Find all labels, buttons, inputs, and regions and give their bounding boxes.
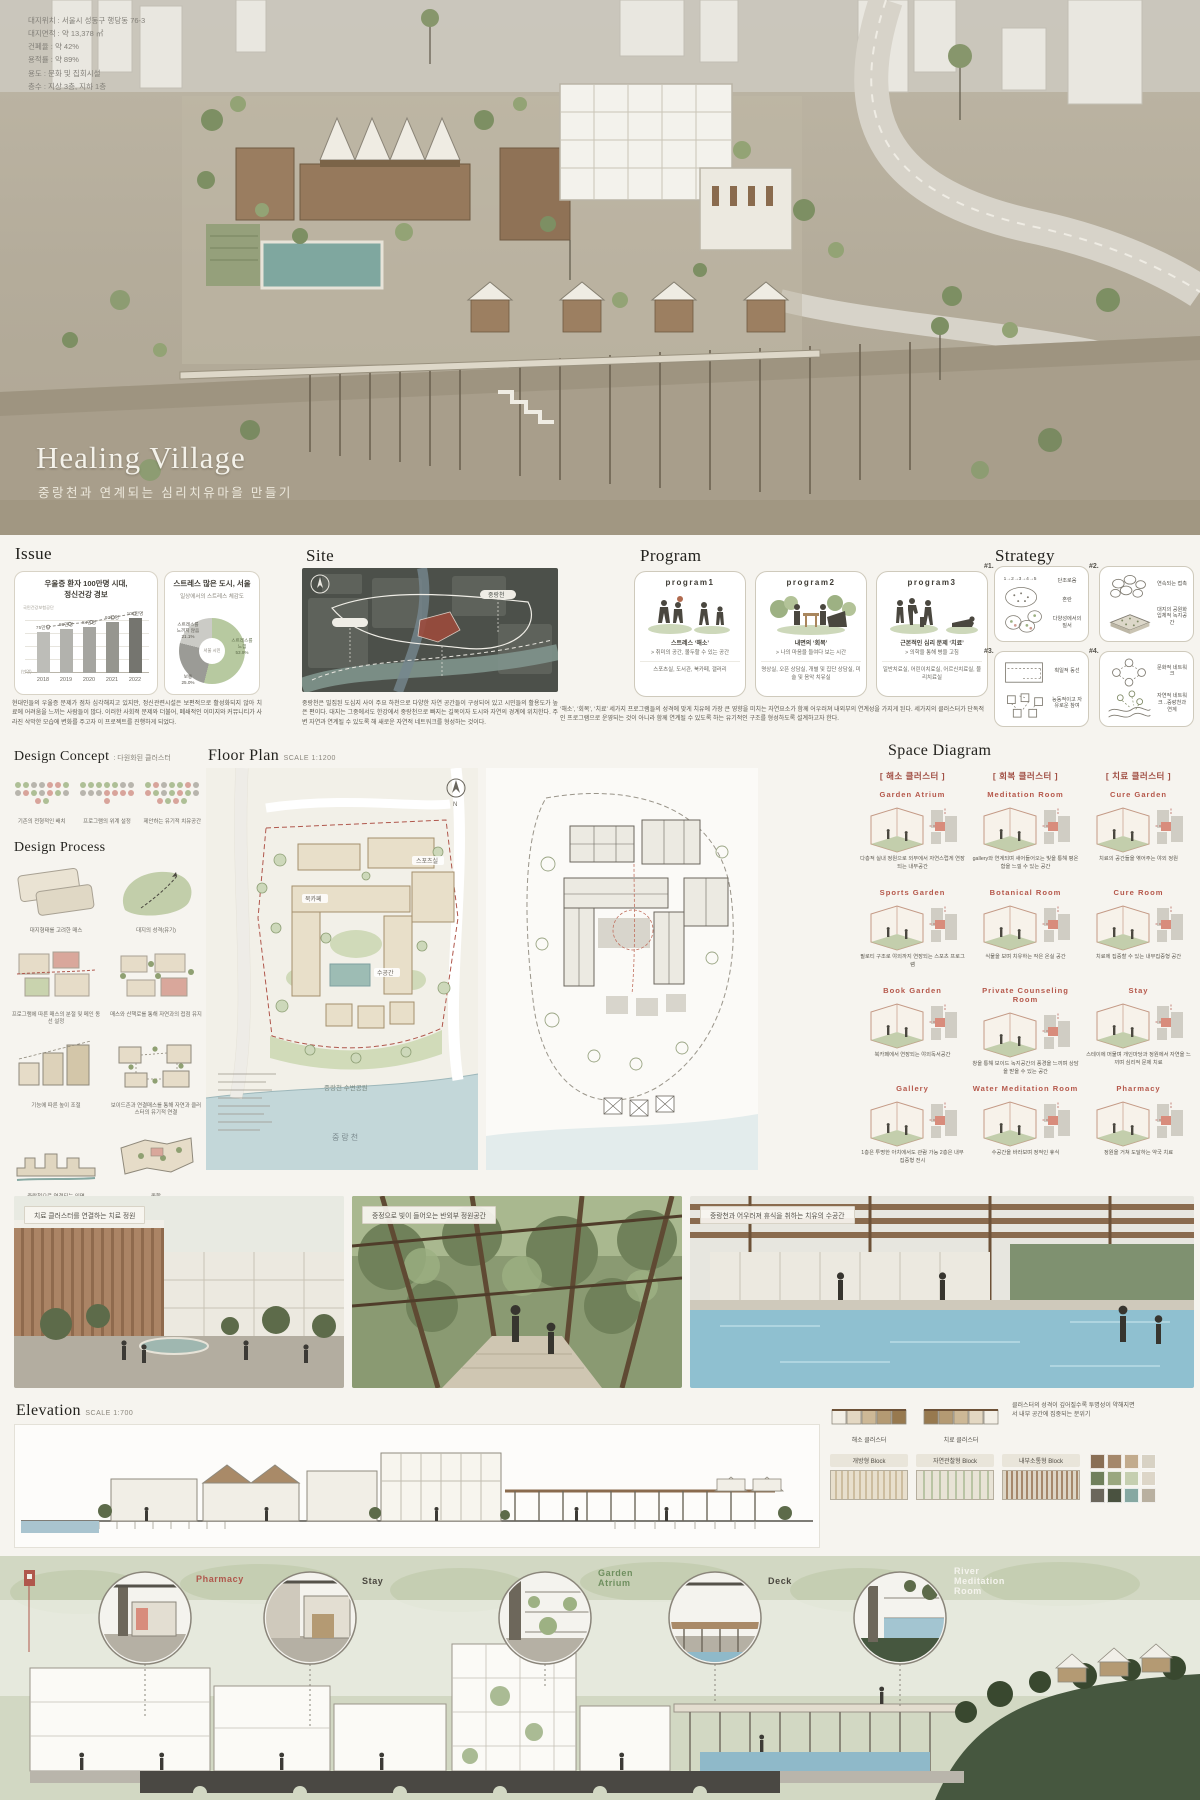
strategy2-doodle bbox=[1106, 572, 1152, 636]
block-sketch bbox=[830, 1470, 908, 1500]
strategy4-doodle bbox=[1106, 657, 1152, 721]
program3-line3: 일반치료실, 어린이치료실, 어르신치료실, 물리치료실 bbox=[882, 661, 982, 682]
svg-text:N: N bbox=[453, 802, 457, 808]
process-caption: 기능에 따른 높이 조절 bbox=[10, 1103, 102, 1111]
strategy-caption: 능동적이고 자유로운 참여 bbox=[1051, 697, 1083, 711]
material-swatch bbox=[1141, 1471, 1156, 1486]
design-process-grid: 대지형태를 고려한 매스 대지의 성격(유기) 프로그램에 따른 매스의 분절 … bbox=[10, 862, 202, 1201]
block-nature: 자연관찰형 Block bbox=[916, 1454, 994, 1500]
strategy-caption: 문화적 네트워크 bbox=[1156, 665, 1188, 679]
issue-body-text: 현대인들의 우울증 문제가 점차 심각해지고 있지만, 정신관련시설은 보편적으… bbox=[12, 700, 262, 728]
bar-series: 75만명80만명84만명93만명100만명 bbox=[29, 607, 149, 673]
pie-center-label: 서울 시민 bbox=[203, 648, 220, 654]
mini-label: 치료 클러스터 bbox=[922, 1435, 1000, 1444]
space-cell-caption: 수공간을 바라보며 정적인 휴식 bbox=[969, 1150, 1082, 1158]
space-cell-cure-room: Cure Room 치료에 집중할 수 있는 내부집중형 공간 bbox=[1082, 888, 1195, 979]
svg-text:1→2→3→4→5: 1→2→3→4→5 bbox=[1004, 576, 1037, 582]
render-caption: 중정으로 빛이 들어오는 반외부 정원공간 bbox=[362, 1206, 496, 1224]
block-open: 개방형 Block bbox=[830, 1454, 908, 1500]
bar: 75만명 bbox=[36, 624, 50, 673]
site-heading: Site bbox=[306, 546, 334, 566]
space-cell-title: Cure Room bbox=[1082, 888, 1195, 897]
strategy-caption: 연속되는 접촉 bbox=[1156, 581, 1188, 588]
strategy-caption: 혼란 bbox=[1051, 597, 1083, 604]
program-card-name: program2 bbox=[761, 578, 861, 587]
info-line: 건폐율 : 약 42% bbox=[28, 40, 145, 53]
block-label: 내부소통형 Block bbox=[1002, 1454, 1080, 1467]
process-step-6: 보이드존과 연결매스를 통해 자연과 클러스터의 유기적 연결 bbox=[110, 1037, 202, 1118]
program2-line1: 내면의 ‘회복’ bbox=[761, 638, 861, 647]
space-cell-botanical-room: Botanical Room 식물을 보며 치유하는 작은 온실 공간 bbox=[969, 888, 1082, 979]
process-caption: 프로그램에 따른 매스의 분절 및 메인 동선 설정 bbox=[10, 1012, 102, 1027]
program3-line2: > 의학을 통해 병을 고침 bbox=[882, 648, 982, 656]
space-diagram-heading: Space Diagram bbox=[888, 742, 991, 760]
issue-cards: 우울증 환자 100만명 시대, 정신건강 경보 국민건강보험공단 (만명) 7… bbox=[14, 571, 260, 695]
space-cell-stay: Stay 스테이에 머물며 개인마당과 정원에서 자연을 느끼며 심리적 문제 … bbox=[1082, 986, 1195, 1077]
bar: 84만명 bbox=[82, 619, 96, 673]
process-caption: 보이드존과 연결매스를 통해 자연과 클러스터의 유기적 연결 bbox=[110, 1103, 202, 1118]
material-swatch bbox=[1107, 1454, 1122, 1469]
plan-label-park: 중랑천 수변공원 bbox=[324, 1083, 368, 1092]
design-concept-title: Design Concept bbox=[14, 749, 109, 764]
render-cure-garden: 치료 클러스터를 연결하는 치료 정원 bbox=[14, 1196, 344, 1388]
process-caption: 대지의 성격(유기) bbox=[110, 928, 202, 936]
plan-label-river: 중랑천 bbox=[332, 1132, 360, 1142]
cluster-transparency-diagrams: 해소 클러스터 치료 클러스터 bbox=[830, 1402, 1000, 1444]
strategy3-doodle bbox=[1001, 657, 1047, 721]
program3-illustration bbox=[882, 591, 982, 635]
concept-caption: 제안하는 유기적 치유공간 bbox=[143, 817, 202, 825]
bar: 93만명 bbox=[105, 614, 119, 673]
depression-chart-card: 우울증 환자 100만명 시대, 정신건강 경보 국민건강보험공단 (만명) 7… bbox=[14, 571, 158, 695]
strategy-heading: Strategy bbox=[995, 546, 1055, 566]
render-water-space: 중랑천과 어우러져 휴식을 취하는 치유의 수공간 bbox=[690, 1196, 1194, 1388]
space-cell-title: Book Garden bbox=[856, 986, 969, 995]
space-cell-title: Sports Garden bbox=[856, 888, 969, 897]
program-card-3: program3 근본적인 심리 문제 ‘치료’ > 의학을 통해 병을 고침 … bbox=[876, 571, 988, 697]
material-swatch bbox=[1124, 1454, 1139, 1469]
space-cell-caption: 창을 통해 보이드 녹지공간의 풍경을 느끼며 상담을 받을 수 있는 공간 bbox=[969, 1061, 1082, 1076]
callout-label-deck: Deck bbox=[768, 1576, 792, 1586]
pie-chart-subtitle: 일상에서의 스트레스 체감도 bbox=[169, 592, 255, 600]
space-cell-water-meditation-room: Water Meditation Room 수공간을 바라보며 정적인 휴식 bbox=[969, 1084, 1082, 1175]
material-swatch bbox=[1090, 1488, 1105, 1503]
cluster-header-cure: [ 치료 클러스터 ] bbox=[1082, 770, 1195, 782]
project-subtitle: 중랑천과 연계되는 심리치유마을 만들기 bbox=[38, 482, 293, 501]
concept-caption: 프로그램의 위계 설정 bbox=[77, 817, 136, 825]
process-caption: 매스와 산책로를 통해 자연과의 접점 유지 bbox=[110, 1012, 202, 1020]
block-inner: 내부소통형 Block bbox=[1002, 1454, 1080, 1500]
concept-caption: 기존의 전형적인 배치 bbox=[12, 817, 71, 825]
material-swatch bbox=[1141, 1454, 1156, 1469]
cluster-header-recovery: [ 회복 클러스터 ] bbox=[969, 770, 1082, 782]
space-cell-caption: 치료에 집중할 수 있는 내부집중형 공간 bbox=[1082, 954, 1195, 962]
x-tick-label: 2022 bbox=[128, 677, 142, 683]
info-line: 대지위치 : 서울시 성동구 행당동 76-3 bbox=[28, 14, 145, 27]
space-cell-title: Private Counseling Room bbox=[969, 986, 1082, 1004]
concept-group-3: 제안하는 유기적 치유공간 bbox=[143, 772, 202, 825]
info-line: 용적률 : 약 89% bbox=[28, 53, 145, 66]
bar-chart-title: 우울증 환자 100만명 시대, 정신건강 경보 bbox=[21, 579, 151, 601]
elevation-scale: SCALE 1:700 bbox=[85, 1410, 133, 1417]
strategy-caption: 자연적 네트워크 ..중랑천과 연계 bbox=[1156, 693, 1188, 713]
space-cell-illustration bbox=[1089, 998, 1189, 1050]
material-swatch bbox=[1141, 1488, 1156, 1503]
space-cell-title: Cure Garden bbox=[1082, 790, 1195, 799]
render-caption: 치료 클러스터를 연결하는 치료 정원 bbox=[24, 1206, 145, 1224]
elevation-heading: Elevation SCALE 1:700 bbox=[16, 1402, 133, 1420]
process-step-2: 대지의 성격(유기) bbox=[110, 862, 202, 936]
info-line: 층수 : 지상 3층, 지하 1층 bbox=[28, 80, 145, 93]
pie-chart-title: 스트레스 많은 도시, 서울 bbox=[169, 579, 255, 590]
program-card-name: program3 bbox=[882, 578, 982, 587]
space-cell-illustration bbox=[1089, 802, 1189, 854]
space-cell-title: Meditation Room bbox=[969, 790, 1082, 799]
x-axis-labels: 20182019202020212022 bbox=[29, 677, 149, 683]
info-line: 용도 : 문화 및 집회시설 bbox=[28, 67, 145, 80]
program1-line3: 스포츠실, 도서관, 북카페, 갤러리 bbox=[640, 661, 740, 674]
space-cell-caption: 식물을 보며 치유하는 작은 온실 공간 bbox=[969, 954, 1082, 962]
project-title: Healing Village bbox=[36, 440, 246, 476]
callout-label-stay: Stay bbox=[362, 1576, 383, 1586]
program1-line1: 스트레스 ‘해소’ bbox=[640, 638, 740, 647]
strategy-number: #2. bbox=[1089, 563, 1099, 570]
strategy-caption: 획일적 동선 bbox=[1051, 668, 1083, 675]
concept-group-1: 기존의 전형적인 배치 bbox=[12, 772, 71, 825]
space-cell-title: Pharmacy bbox=[1082, 1084, 1195, 1093]
strategy-number: #4. bbox=[1089, 648, 1099, 655]
plan-label-sports: 스포츠실 bbox=[416, 857, 438, 865]
strategy-caption: 단조로움 bbox=[1051, 578, 1083, 585]
design-concept-suffix: : 다원화된 클러스터 bbox=[113, 755, 170, 762]
material-swatch bbox=[1107, 1488, 1122, 1503]
space-cell-illustration bbox=[863, 1096, 963, 1148]
x-tick-label: 2018 bbox=[36, 677, 50, 683]
program-heading: Program bbox=[640, 546, 701, 566]
presentation-board: 대지위치 : 서울시 성동구 행당동 76-3 대지면적 : 약 13,378 … bbox=[0, 0, 1200, 1800]
strategy-caption: 다양성에서의 질서 bbox=[1051, 616, 1083, 630]
space-cell-illustration bbox=[976, 802, 1076, 854]
dot-diagram bbox=[12, 772, 71, 814]
floor-plan-drawing bbox=[486, 768, 758, 1170]
strategy-card-2: #2. 연속되는 접촉 대지의 공원화 입체적 녹지공간 bbox=[1099, 566, 1194, 642]
mini-label: 해소 클러스터 bbox=[830, 1435, 908, 1444]
process-step-7: 중랑천으로 연결되는 입면 bbox=[10, 1128, 102, 1202]
space-cell-private-counseling-room: Private Counseling Room 창을 통해 보이드 녹지공간의 … bbox=[969, 986, 1082, 1077]
space-cell-gallery: Gallery 1층은 투명한 아치에서도 관람 가능 2층은 내부 집중형 전… bbox=[856, 1084, 969, 1175]
strategy1-doodle: 1→2→3→4→5 bbox=[1001, 572, 1047, 636]
program1-line2: > 취미의 공간, 몰두할 수 있는 공간 bbox=[640, 648, 740, 656]
space-cell-illustration bbox=[863, 900, 963, 952]
program-card-name: program1 bbox=[640, 578, 740, 587]
issue-heading: Issue bbox=[15, 544, 52, 564]
strategy-number: #3. bbox=[984, 648, 994, 655]
design-concept-diagrams: 기존의 전형적인 배치 프로그램의 위계 설정 제안하는 유기적 치유공간 bbox=[12, 772, 202, 825]
process-step-4: 매스와 산책로를 통해 자연과의 접점 유지 bbox=[110, 946, 202, 1027]
block-type-legend: 개방형 Block 자연관찰형 Block 내부소통형 Block bbox=[830, 1454, 1080, 1500]
space-cell-meditation-room: Meditation Room gallery와 연계되며 새어들어오는 빛을 … bbox=[969, 790, 1082, 881]
pie-label-yes: 스트레스를 느낌 53.9% bbox=[229, 638, 255, 657]
hero-render: 대지위치 : 서울시 성동구 행당동 76-3 대지면적 : 약 13,378 … bbox=[0, 0, 1200, 535]
space-cell-caption: 다층적 실내 정원으로 외부에서 자연스럽게 연장되는 내부공간 bbox=[856, 856, 969, 871]
callout-label-river-meditation-room: River Meditation Room bbox=[954, 1566, 1005, 1596]
space-cell-illustration bbox=[863, 998, 963, 1050]
block-sketch bbox=[1002, 1470, 1080, 1500]
space-cell-cure-garden: Cure Garden 치료의 공간들을 엮어주는 야외 정원 bbox=[1082, 790, 1195, 881]
pie-label-mid: 보통 25.0% bbox=[173, 674, 203, 686]
program-cards: program1 스트레스 ‘해소’ > 취미의 공간, 몰두할 수 있는 공간… bbox=[634, 571, 986, 697]
space-cell-title: Garden Atrium bbox=[856, 790, 969, 799]
elevation-title: Elevation bbox=[16, 1402, 81, 1419]
x-tick-label: 2021 bbox=[105, 677, 119, 683]
strategy-grid: #1. 1→2→3→4→5 단조로움 혼란 다양성에서의 질서 bbox=[994, 566, 1194, 727]
render-caption: 중랑천과 어우러져 휴식을 취하는 치유의 수공간 bbox=[700, 1206, 855, 1224]
program-card-1: program1 스트레스 ‘해소’ > 취미의 공간, 몰두할 수 있는 공간… bbox=[634, 571, 746, 697]
design-concept-heading: Design Concept: 다원화된 클러스터 bbox=[14, 747, 171, 765]
strategy-number: #1. bbox=[984, 563, 994, 570]
strategy-card-4: #4. 문화적 네트워크 자연적 네트워크 ..중랑천과 연계 bbox=[1099, 651, 1194, 727]
strategy-card-3: #3. 획일적 동선 능동적이고 자유로운 참여 bbox=[994, 651, 1089, 727]
space-cell-caption: 북카페에서 연장되는 야외독서공간 bbox=[856, 1052, 969, 1060]
info-line: 대지면적 : 약 13,378 ㎡ bbox=[28, 27, 145, 40]
space-diagram-grid: Garden Atrium 다층적 실내 정원으로 외부에서 자연스럽게 연장되… bbox=[856, 790, 1196, 1175]
block-label: 자연관찰형 Block bbox=[916, 1454, 994, 1467]
material-swatch bbox=[1090, 1454, 1105, 1469]
space-cell-illustration bbox=[1089, 900, 1189, 952]
x-tick-label: 2020 bbox=[82, 677, 96, 683]
bar: 100만명 bbox=[128, 610, 142, 673]
material-swatch bbox=[1124, 1471, 1139, 1486]
program2-line2: > 나의 마음을 들여다 보는 시간 bbox=[761, 648, 861, 656]
material-swatch bbox=[1090, 1471, 1105, 1486]
elevation-legend: 해소 클러스터 치료 클러스터 클러스터의 성격이 깊어질수록 투명성이 약해지… bbox=[830, 1402, 1194, 1548]
dot-diagram bbox=[143, 772, 202, 814]
plan-label-bookcafe: 북카페 bbox=[305, 895, 322, 903]
stress-pie-card: 스트레스 많은 도시, 서울 일상에서의 스트레스 체감도 서울 시민 스트레스… bbox=[164, 571, 260, 695]
space-cell-pharmacy: Pharmacy 정원을 거쳐 도달하는 약국 치료 bbox=[1082, 1084, 1195, 1175]
x-tick-label: 2019 bbox=[59, 677, 73, 683]
elevation-caption: 클러스터의 성격이 깊어질수록 투명성이 약해지면서 내부 공간에 집중되는 분… bbox=[1012, 1402, 1140, 1421]
space-cell-illustration bbox=[1089, 1096, 1189, 1148]
space-cell-illustration bbox=[976, 900, 1076, 952]
space-cell-caption: gallery와 연계되며 새어들어오는 빛을 통해 평온함을 느낄 수 있는 … bbox=[969, 856, 1082, 871]
pie-chart: 서울 시민 스트레스를 느끼지 않음 21.1% 보통 25.0% 스트레스를 … bbox=[169, 608, 255, 694]
space-cell-illustration bbox=[863, 802, 963, 854]
process-caption: 대지형태를 고려한 매스 bbox=[10, 928, 102, 936]
map-label-river: 중랑천 bbox=[488, 591, 505, 599]
space-cell-caption: 필로티 구조로 야외까지 연장되는 스포츠 프로그램 bbox=[856, 954, 969, 969]
space-diagram-cluster-headers: [ 해소 클러스터 ] [ 회복 클러스터 ] [ 치료 클러스터 ] bbox=[856, 770, 1196, 782]
space-cell-title: Water Meditation Room bbox=[969, 1084, 1082, 1093]
bottom-section-drawing: Pharmacy Stay Garden Atrium Deck River M… bbox=[0, 1556, 1200, 1800]
space-cell-title: Stay bbox=[1082, 986, 1195, 995]
space-cell-caption: 스테이에 머물며 개인마당과 정원에서 자연을 느끼며 심리적 문제 치료 bbox=[1082, 1052, 1195, 1067]
site-map: 중랑천 bbox=[302, 568, 558, 692]
process-step-1: 대지형태를 고려한 매스 bbox=[10, 862, 102, 936]
space-cell-illustration bbox=[976, 1096, 1076, 1148]
callout-label-pharmacy: Pharmacy bbox=[196, 1574, 244, 1584]
pie-label-none: 스트레스를 느끼지 않음 21.1% bbox=[171, 622, 205, 641]
floor-plan-scale: SCALE 1:1200 bbox=[284, 755, 336, 762]
program3-line1: 근본적인 심리 문제 ‘치료’ bbox=[882, 638, 982, 647]
program1-illustration bbox=[640, 591, 740, 635]
program-card-2: program2 내면의 ‘회복’ > 나의 마음을 들여다 보는 시간 명상실… bbox=[755, 571, 867, 697]
cluster-header-relief: [ 해소 클러스터 ] bbox=[856, 770, 969, 782]
program2-illustration bbox=[761, 591, 861, 635]
concept-group-2: 프로그램의 위계 설정 bbox=[77, 772, 136, 825]
plan-label-water: 수공간 bbox=[377, 969, 394, 977]
bar: 80만명 bbox=[59, 621, 73, 673]
floor-plan-heading: Floor Plan SCALE 1:1200 bbox=[208, 747, 336, 765]
space-cell-caption: 1층은 투명한 아치에서도 관람 가능 2층은 내부 집중형 전시 bbox=[856, 1150, 969, 1165]
block-label: 개방형 Block bbox=[830, 1454, 908, 1467]
process-step-8: 종합 bbox=[110, 1128, 202, 1202]
space-cell-sports-garden: Sports Garden 필로티 구조로 야외까지 연장되는 스포츠 프로그램 bbox=[856, 888, 969, 979]
floor-plan-title: Floor Plan bbox=[208, 747, 279, 764]
process-step-5: 기능에 따른 높이 조절 bbox=[10, 1037, 102, 1118]
space-cell-caption: 치료의 공간들을 엮어주는 야외 정원 bbox=[1082, 856, 1195, 864]
space-cell-title: Botanical Room bbox=[969, 888, 1082, 897]
program2-line3: 명상실, 오픈 상담실, 개별 및 집단 상담실, 미술 및 음악 치유실 bbox=[761, 661, 861, 682]
material-swatches bbox=[1090, 1454, 1156, 1503]
space-cell-title: Gallery bbox=[856, 1084, 969, 1093]
space-cell-caption: 정원을 거쳐 도달하는 약국 치료 bbox=[1082, 1150, 1195, 1158]
site-info-block: 대지위치 : 서울시 성동구 행당동 76-3 대지면적 : 약 13,378 … bbox=[28, 14, 145, 93]
strategy-caption: 대지의 공원화 입체적 녹지공간 bbox=[1156, 607, 1188, 627]
site-body-text: 중랑천은 밀집된 도심지 사이 주요 하천으로 다양한 자연 공간들이 구성되어… bbox=[302, 700, 558, 728]
bar-chart: 국민건강보험공단 (만명) 75만명80만명84만명93만명100만명 2018… bbox=[21, 607, 151, 685]
callout-label-garden-atrium: Garden Atrium bbox=[598, 1568, 633, 1588]
dot-diagram bbox=[77, 772, 136, 814]
program-body-text: ‘해소’, ‘회복’, ‘치료’ 세가지 프로그램들의 성격에 맞게 치유에 가… bbox=[560, 706, 984, 725]
material-swatch bbox=[1107, 1471, 1122, 1486]
space-cell-garden-atrium: Garden Atrium 다층적 실내 정원으로 외부에서 자연스럽게 연장되… bbox=[856, 790, 969, 881]
block-sketch bbox=[916, 1470, 994, 1500]
render-garden-space: 중정으로 빛이 들어오는 반외부 정원공간 bbox=[352, 1196, 682, 1388]
elevation-drawing bbox=[14, 1424, 820, 1548]
space-cell-illustration bbox=[976, 1007, 1076, 1059]
space-cell-book-garden: Book Garden 북카페에서 연장되는 야외독서공간 bbox=[856, 986, 969, 1077]
process-step-3: 프로그램에 따른 매스의 분절 및 메인 동선 설정 bbox=[10, 946, 102, 1027]
design-process-heading: Design Process bbox=[14, 840, 106, 856]
material-swatch bbox=[1124, 1488, 1139, 1503]
site-plan-drawing: 스포츠실 수공간 북카페 중랑천 수변공원 중랑천 N bbox=[206, 768, 478, 1170]
strategy-card-1: #1. 1→2→3→4→5 단조로움 혼란 다양성에서의 질서 bbox=[994, 566, 1089, 642]
